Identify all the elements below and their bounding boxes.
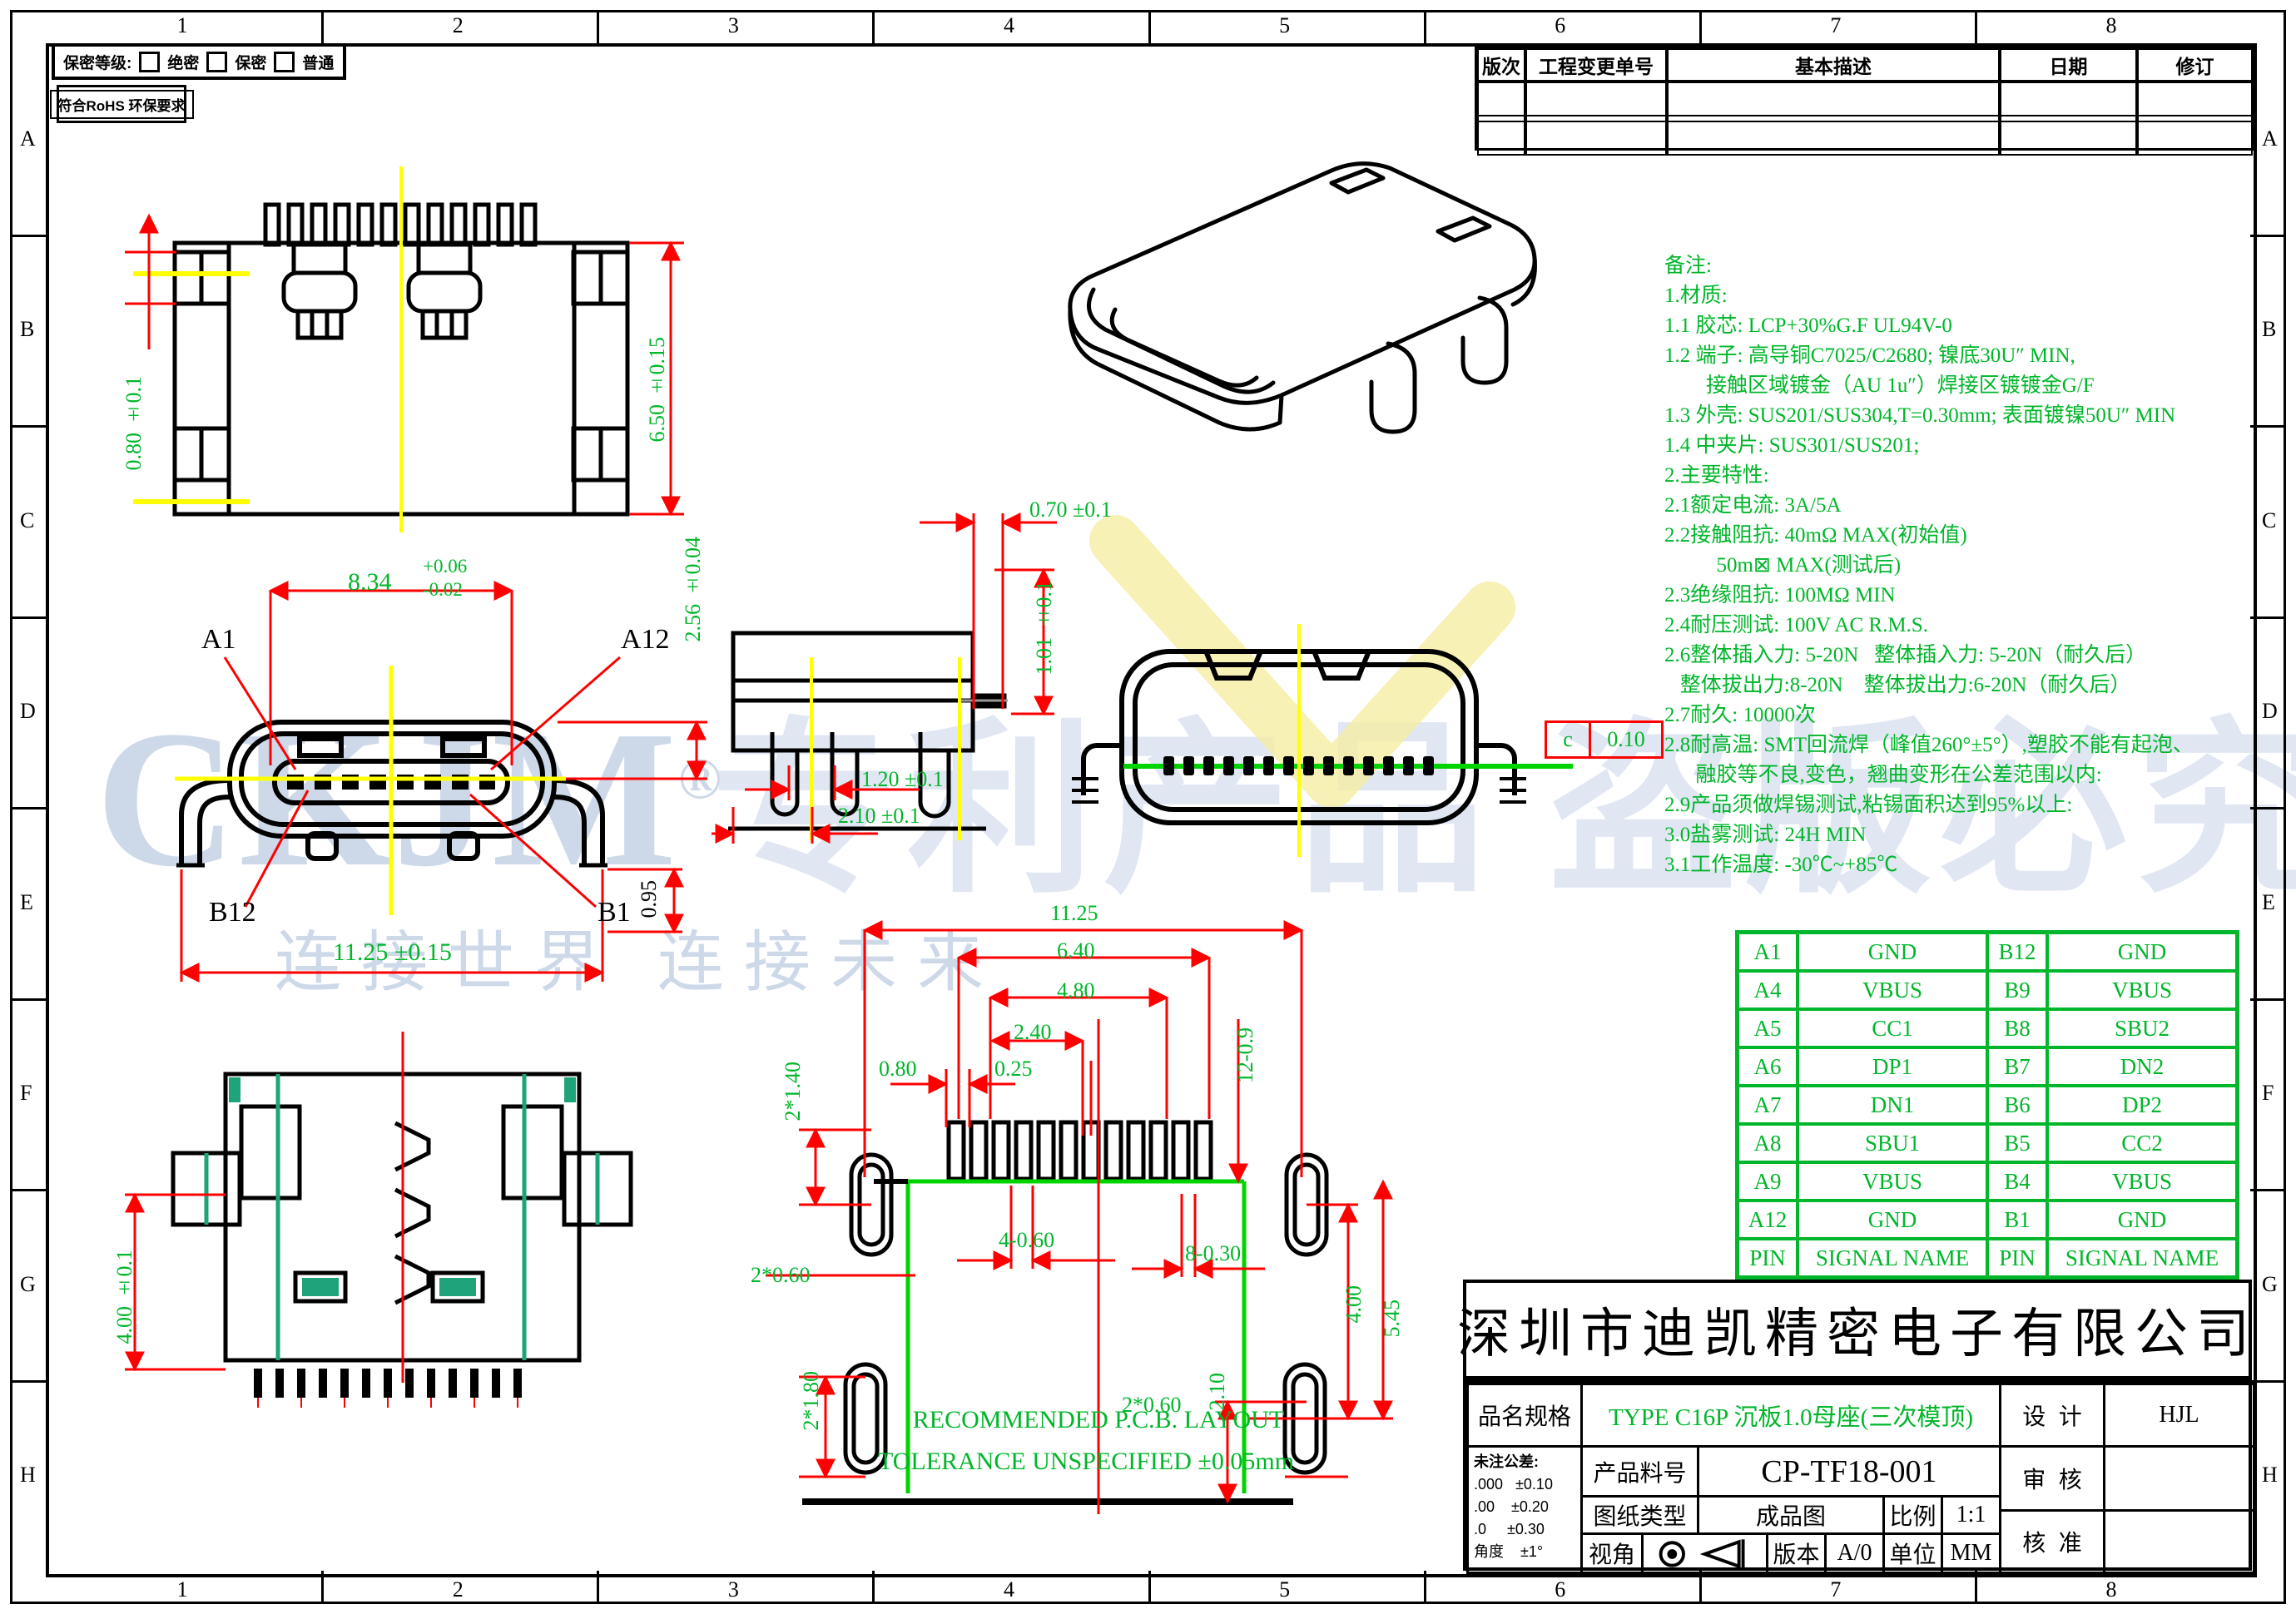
note-line: 1.材质: bbox=[1664, 281, 2194, 311]
pin-table-cell: PIN bbox=[1987, 1239, 2047, 1277]
pin-callout-a12: A12 bbox=[621, 624, 670, 656]
pin-table-cell: VBUS bbox=[2047, 1162, 2237, 1201]
pin-table-cell: SIGNAL NAME bbox=[2047, 1239, 2237, 1277]
dim-label: 6.40 bbox=[1057, 938, 1095, 963]
pin-table-cell: A9 bbox=[1738, 1162, 1798, 1201]
pcb-tolerance-caption: TOLERANCE UNSPECIFIED ±0.05mm bbox=[820, 1448, 1352, 1476]
revision-empty-cell bbox=[1525, 115, 1667, 156]
pin-table-cell: DP2 bbox=[2047, 1086, 2237, 1124]
pin-table-cell: GND bbox=[2047, 933, 2237, 971]
note-line: 2.2接触阻抗: 40mΩ MAX(初始值) bbox=[1664, 521, 2194, 551]
dim-label: 0.25 bbox=[994, 1057, 1033, 1082]
pin-table-cell: A8 bbox=[1738, 1124, 1798, 1162]
dim-label: 2.40 bbox=[1014, 1020, 1052, 1045]
pcb-layout-caption: RECOMMENDED P.C.B. LAYOUT bbox=[832, 1406, 1365, 1434]
dim-label: 1.20 ±0.1 bbox=[861, 767, 944, 792]
pin-table-cell: A6 bbox=[1738, 1047, 1798, 1086]
unit-value: MM bbox=[1941, 1532, 2001, 1574]
dim-label: 2*0.60 bbox=[751, 1263, 811, 1288]
scale-value: 1:1 bbox=[1941, 1495, 2001, 1535]
note-line: 2.6整体插入力: 5-20N 整体插入力: 5-20N（耐久后） bbox=[1664, 641, 2194, 671]
pin-table-cell: A5 bbox=[1738, 1009, 1798, 1047]
revision-empty-cell bbox=[1477, 115, 1525, 156]
dim-label: +0.06 bbox=[423, 556, 467, 577]
pin-callout-a1: A1 bbox=[201, 624, 236, 656]
security-level-box: 保密等级: 绝密 保密 普通 bbox=[52, 43, 346, 80]
note-line: 2.主要特性: bbox=[1664, 461, 2194, 491]
note-line: 50m⊠ MAX(测试后) bbox=[1664, 551, 2194, 581]
note-line: 1.4 中夹片: SUS301/SUS201; bbox=[1664, 431, 2194, 461]
note-line: 备注: bbox=[1664, 251, 2194, 281]
approve-label: 核 准 bbox=[1999, 1509, 2105, 1574]
note-line: 2.8耐高温: SMT回流焊（峰值260°±5°）,塑胶不能有起泡、 bbox=[1664, 730, 2194, 760]
dim-label: 2.56 ±0.04 bbox=[681, 537, 706, 642]
design-label: 设 计 bbox=[1999, 1383, 2105, 1448]
dim-label: 6.50 ±0.15 bbox=[645, 337, 670, 443]
pin-table-cell: A12 bbox=[1738, 1201, 1798, 1239]
dim-label: 4-0.60 bbox=[999, 1228, 1054, 1253]
security-option-label: 普通 bbox=[302, 51, 334, 73]
company-name: 深圳市迪凯精密电子有限公司 bbox=[1463, 1280, 2252, 1379]
part-number-value: CP-TF18-001 bbox=[1697, 1445, 2001, 1498]
dim-label: 2*1.80 bbox=[799, 1371, 824, 1431]
pin-table-cell: CC1 bbox=[1798, 1009, 1987, 1047]
pin-signal-table: A1GNDB12GNDA4VBUSB9VBUSA5CC1B8SBU2A6DP1B… bbox=[1735, 930, 2239, 1280]
note-line: 2.1额定电流: 3A/5A bbox=[1664, 491, 2194, 521]
note-line: 2.7耐久: 10000次 bbox=[1664, 701, 2194, 730]
version-label: 版本 bbox=[1766, 1532, 1827, 1574]
revision-header-cell: 版次 bbox=[1477, 48, 1525, 82]
pin-table-cell: B4 bbox=[1987, 1162, 2047, 1201]
dim-label: 2.10 bbox=[1205, 1373, 1230, 1411]
note-line: 3.1工作温度: -30℃~+85℃ bbox=[1664, 850, 2194, 880]
note-line: 整体拔出力:8-20N 整体拔出力:6-20N（耐久后） bbox=[1664, 671, 2194, 701]
dim-label: 4.80 bbox=[1057, 978, 1095, 1003]
dim-label: 11.25 ±0.15 bbox=[333, 938, 452, 967]
note-line: 1.1 胶芯: LCP+30%G.F UL94V-0 bbox=[1664, 311, 2194, 341]
dim-label: 4.00 bbox=[1341, 1285, 1366, 1324]
projection-symbol-icon bbox=[1641, 1532, 1768, 1574]
checkbox-confidential bbox=[206, 52, 227, 72]
pin-table-cell: PIN bbox=[1738, 1239, 1798, 1277]
security-option-label: 绝密 bbox=[167, 51, 199, 73]
engineering-drawing-sheet: CKJM® 连接世界 连接未来 专利产品 盗版必究 11223344556677… bbox=[0, 0, 2296, 1614]
design-value: HJL bbox=[2103, 1383, 2255, 1448]
check-label: 审 核 bbox=[1999, 1445, 2105, 1512]
note-line: 2.9产品须做焊锡测试,粘锡面积达到95%以上: bbox=[1664, 790, 2194, 820]
checkbox-top-secret bbox=[139, 52, 160, 72]
note-line: 1.3 外壳: SUS201/SUS304,T=0.30mm; 表面镀镍50U″… bbox=[1664, 401, 2194, 431]
pin-table-cell: B12 bbox=[1987, 933, 2047, 971]
version-value: A/0 bbox=[1824, 1532, 1885, 1574]
pin-table-cell: GND bbox=[2047, 1201, 2237, 1239]
dim-label: 2.10 ±0.1 bbox=[838, 804, 920, 829]
part-number-label: 产品料号 bbox=[1580, 1445, 1699, 1498]
view-angle-label: 视角 bbox=[1580, 1532, 1644, 1574]
note-line: 3.0盐雾测试: 24H MIN bbox=[1664, 820, 2194, 850]
dim-label: 0.80 ±0.1 bbox=[121, 376, 146, 471]
pin-table-cell: A7 bbox=[1738, 1086, 1798, 1124]
revision-header-cell: 修订 bbox=[2137, 48, 2253, 82]
note-line: 融胶等不良,变色，翘曲变形在公差范围以内: bbox=[1664, 760, 2194, 790]
pin-callout-b1: B1 bbox=[598, 897, 631, 928]
drawing-type-value: 成品图 bbox=[1697, 1495, 1885, 1535]
pin-table-cell: A4 bbox=[1738, 971, 1798, 1009]
dim-label: 5.45 bbox=[1380, 1300, 1405, 1338]
revision-empty-cell bbox=[2137, 115, 2253, 156]
checkbox-normal bbox=[274, 52, 295, 72]
pin-callout-b12: B12 bbox=[209, 897, 256, 928]
untoleranced-block: 未注公差: .000 ±0.10 .00 ±0.20 .0 ±0.30 角度 ±… bbox=[1466, 1445, 1583, 1574]
notes-block: 备注:1.材质:1.1 胶芯: LCP+30%G.F UL94V-01.2 端子… bbox=[1664, 251, 2194, 880]
pin-table-cell: VBUS bbox=[1798, 971, 1987, 1009]
approve-value bbox=[2103, 1509, 2255, 1574]
pin-table-cell: SIGNAL NAME bbox=[1798, 1239, 1987, 1277]
note-line: 2.4耐压测试: 100V AC R.M.S. bbox=[1664, 611, 2194, 641]
revision-empty-cell bbox=[2000, 115, 2137, 156]
pin-table-cell: B6 bbox=[1987, 1086, 2047, 1124]
pin-table-cell: B8 bbox=[1987, 1009, 2047, 1047]
dim-label: -0.02 bbox=[423, 579, 463, 601]
rohs-compliance-box: 符合RoHS 环保要求 bbox=[57, 85, 186, 123]
pin-table-cell: DN2 bbox=[2047, 1047, 2237, 1086]
note-line: 1.2 端子: 高导铜C7025/C2680; 镍底30U″ MIN, bbox=[1664, 341, 2194, 371]
pin-table-cell: A1 bbox=[1738, 933, 1798, 971]
dim-label: 2*0.60 bbox=[1122, 1393, 1182, 1418]
product-name-value: TYPE C16P 沉板1.0母座(三次模顶) bbox=[1580, 1383, 2001, 1448]
pin-table-cell: B7 bbox=[1987, 1047, 2047, 1086]
unit-label: 单位 bbox=[1882, 1532, 1943, 1574]
revision-empty-cell bbox=[1667, 115, 2000, 156]
dim-label: 0.80 bbox=[879, 1057, 917, 1082]
pin-table-cell: GND bbox=[1798, 1201, 1987, 1239]
revision-table: 版次工程变更单号基本描述日期修订 bbox=[1475, 46, 2255, 151]
pin-table-cell: SBU1 bbox=[1798, 1124, 1987, 1162]
pin-table-cell: CC2 bbox=[2047, 1124, 2237, 1162]
pin-table-cell: B5 bbox=[1987, 1124, 2047, 1162]
dim-label: 11.25 bbox=[1050, 901, 1098, 926]
pin-table-cell: DP1 bbox=[1798, 1047, 1987, 1086]
pin-table-cell: B9 bbox=[1987, 971, 2047, 1009]
drawing-type-label: 图纸类型 bbox=[1580, 1495, 1699, 1535]
pin-table-cell: VBUS bbox=[1798, 1162, 1987, 1201]
dim-label: 0.95 bbox=[637, 880, 662, 918]
pin-table-cell: DN1 bbox=[1798, 1086, 1987, 1124]
name-spec-label: 品名规格 bbox=[1466, 1383, 1583, 1448]
dim-label: 8-0.30 bbox=[1185, 1241, 1241, 1266]
datum-flag-box: c0.10 bbox=[1545, 720, 1664, 759]
check-value bbox=[2103, 1445, 2255, 1512]
title-block: 品名规格 TYPE C16P 沉板1.0母座(三次模顶) 设 计 HJL 未注公… bbox=[1463, 1379, 2252, 1571]
dim-label: 4.00 ±0.1 bbox=[112, 1250, 137, 1344]
revision-header-cell: 工程变更单号 bbox=[1525, 48, 1667, 82]
dim-label: 2*1.40 bbox=[781, 1062, 806, 1121]
note-line: 接触区域镀金（AU 1u″）焊接区镀镀金G/F bbox=[1664, 371, 2194, 401]
pin-table-cell: GND bbox=[1798, 933, 1987, 971]
pin-table-cell: VBUS bbox=[2047, 971, 2237, 1009]
revision-header-cell: 基本描述 bbox=[1667, 48, 2000, 82]
dim-label: 1.01 ±0.1 bbox=[1032, 581, 1057, 676]
dim-label: 8.34 bbox=[348, 568, 392, 597]
dim-label: 12-0.9 bbox=[1233, 1027, 1258, 1083]
scale-label: 比例 bbox=[1882, 1495, 1943, 1535]
pin-table-cell: B1 bbox=[1987, 1201, 2047, 1239]
revision-header-cell: 日期 bbox=[2000, 48, 2137, 82]
dim-label: 0.70 ±0.1 bbox=[1029, 498, 1112, 522]
pin-table-cell: SBU2 bbox=[2047, 1009, 2237, 1047]
security-label: 保密等级: bbox=[63, 51, 131, 73]
security-option-label: 保密 bbox=[235, 51, 266, 73]
note-line: 2.3绝缘阻抗: 100MΩ MIN bbox=[1664, 581, 2194, 611]
